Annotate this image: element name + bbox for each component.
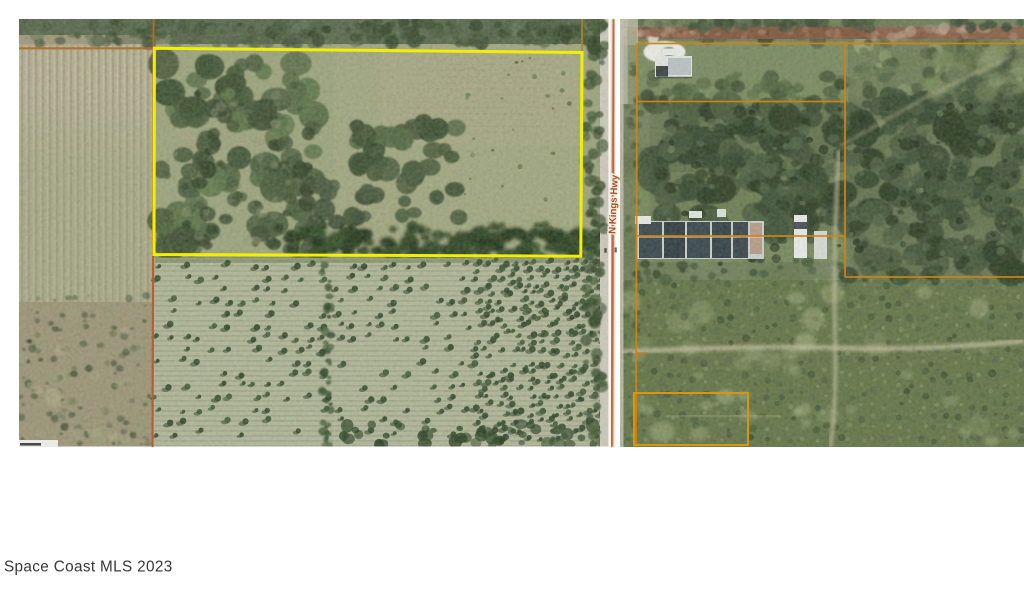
svg-text:Space Coast MLS 2023: Space Coast MLS 2023 <box>4 559 173 576</box>
